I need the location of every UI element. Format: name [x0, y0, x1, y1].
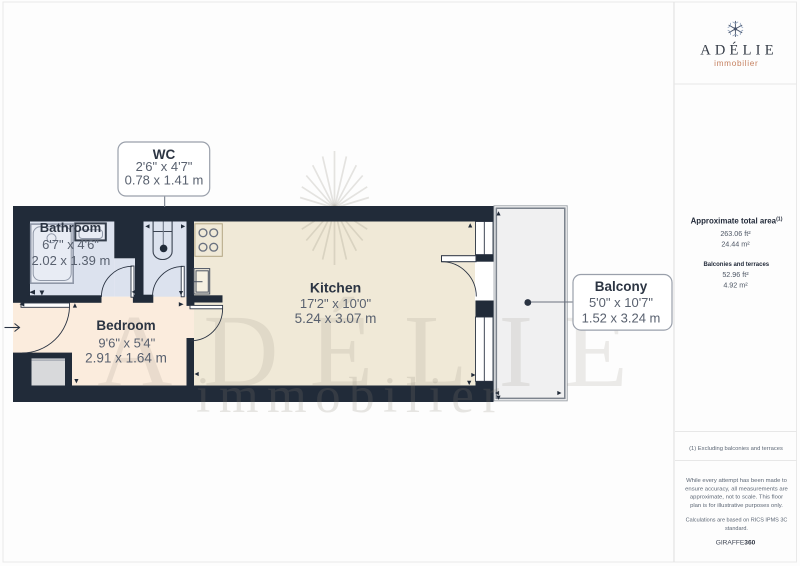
svg-text:2.02 x 1.39 m: 2.02 x 1.39 m [32, 253, 111, 268]
svg-text:ADÉLIE: ADÉLIE [700, 42, 778, 59]
svg-text:standard.: standard. [725, 526, 748, 532]
svg-text:Balcony: Balcony [595, 279, 648, 294]
svg-text:0.78 x 1.41 m: 0.78 x 1.41 m [125, 173, 204, 188]
svg-text:Approximate total area(1): Approximate total area(1) [691, 217, 783, 226]
svg-text:GIRAFFE360: GIRAFFE360 [716, 540, 756, 547]
svg-text:5.24 x 3.07 m: 5.24 x 3.07 m [295, 311, 377, 326]
svg-text:4.92 m²: 4.92 m² [723, 281, 748, 290]
svg-text:immobilier: immobilier [714, 59, 758, 68]
svg-text:263.06 ft²: 263.06 ft² [720, 229, 751, 238]
svg-text:2.91 x 1.64 m: 2.91 x 1.64 m [85, 350, 167, 365]
svg-text:6'7" x 4'6": 6'7" x 4'6" [42, 237, 99, 252]
svg-text:approximate, not to scale. Thi: approximate, not to scale. This floor [690, 495, 783, 501]
svg-text:Bathroom: Bathroom [40, 220, 101, 235]
svg-text:5'0" x 10'7": 5'0" x 10'7" [589, 295, 653, 310]
svg-text:Bedroom: Bedroom [96, 318, 155, 333]
svg-text:52.96 ft²: 52.96 ft² [722, 270, 749, 279]
svg-text:Calculations are based on RICS: Calculations are based on RICS IPMS 3C [686, 518, 788, 524]
svg-text:immobilier: immobilier [196, 368, 508, 424]
svg-text:plan is for illustrative purpo: plan is for illustrative purposes only. [690, 503, 783, 509]
svg-text:Kitchen: Kitchen [310, 280, 361, 296]
svg-text:9'6" x 5'4": 9'6" x 5'4" [98, 336, 155, 351]
svg-text:17'2" x 10'0": 17'2" x 10'0" [300, 296, 372, 311]
svg-text:ensure accuracy, all measureme: ensure accuracy, all measurements are [685, 486, 788, 492]
svg-text:24.44 m²: 24.44 m² [721, 240, 750, 249]
svg-text:While every attempt has been m: While every attempt has been made to [686, 478, 788, 484]
svg-text:(1) Excluding balconies and te: (1) Excluding balconies and terraces [689, 446, 783, 452]
svg-text:1.52 x 3.24 m: 1.52 x 3.24 m [582, 311, 661, 326]
svg-text:Balconies and terraces: Balconies and terraces [703, 262, 769, 268]
